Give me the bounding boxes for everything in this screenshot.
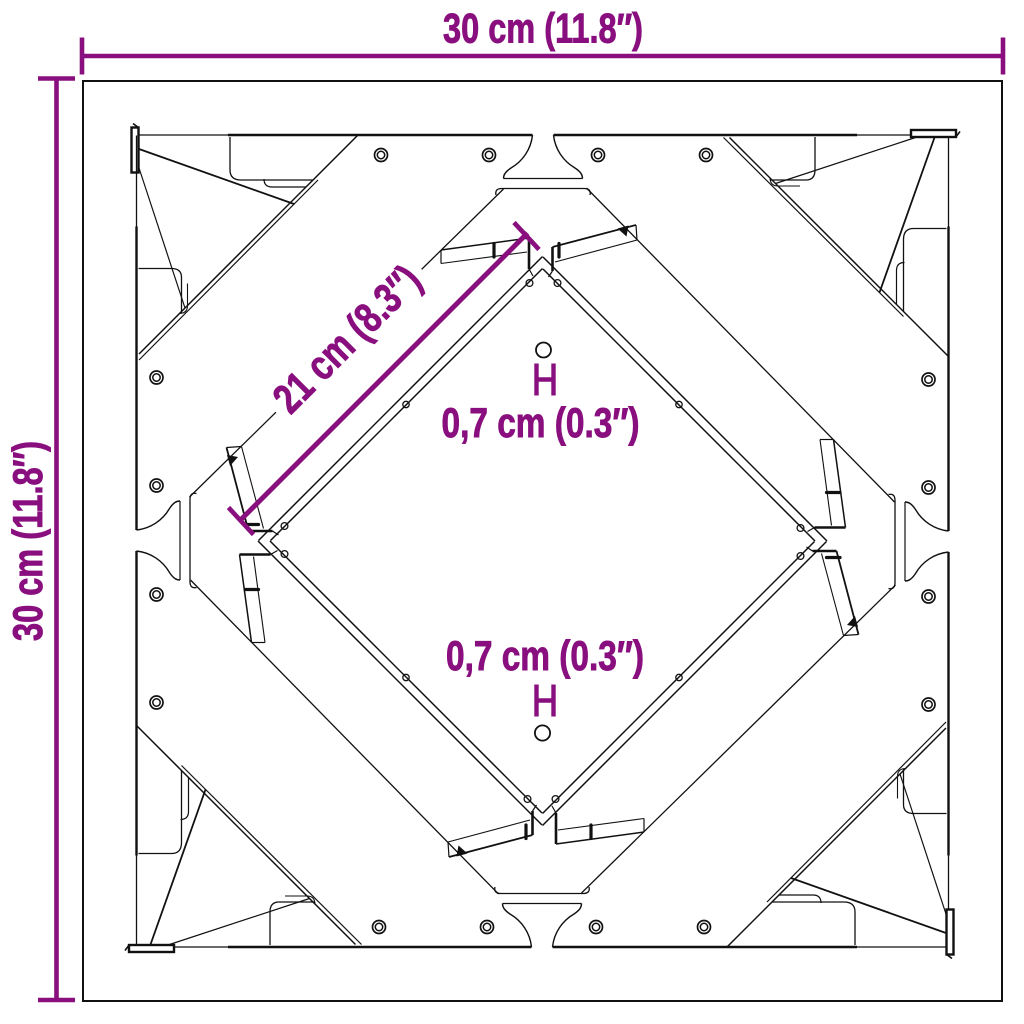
svg-text:0,7 cm (0.3″): 0,7 cm (0.3″) — [446, 632, 644, 679]
svg-text:30 cm (11.8″): 30 cm (11.8″) — [4, 441, 51, 641]
svg-text:30 cm (11.8″): 30 cm (11.8″) — [443, 5, 643, 52]
svg-text:0,7 cm (0.3″): 0,7 cm (0.3″) — [442, 399, 640, 446]
